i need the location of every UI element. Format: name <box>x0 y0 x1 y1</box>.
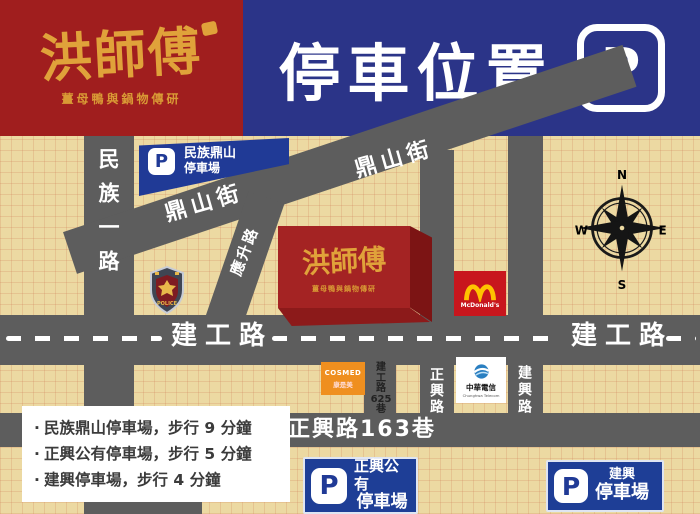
compass-w: W <box>575 223 588 237</box>
parking-p-icon: P <box>148 148 175 175</box>
mcdonalds-icon: McDonald's <box>454 271 506 316</box>
building-bottom-face <box>278 308 430 326</box>
brand-logo-subtitle: 薑母鴨與鍋物傳研 <box>61 90 181 107</box>
map: 民族一路 鼎山街 鼎山街 應升路 建工路 建工路 建 工 路 625 巷 正興路… <box>0 136 700 514</box>
building-front-face: 洪師傅 薑母鴨與鍋物傳研 <box>278 226 410 308</box>
restaurant-subtitle: 薑母鴨與鍋物傳研 <box>312 284 376 294</box>
cosmed-label-en: COSMED <box>325 369 362 377</box>
road-jianxing-upper <box>508 136 543 315</box>
compass-n: N <box>617 168 627 182</box>
road-label-minzu: 民族一路 <box>97 148 118 284</box>
legend-item: ‧建興停車場，步行 4 分鐘 <box>30 467 282 493</box>
mcdonalds-label: McDonald's <box>461 302 500 309</box>
parking-p-icon: P <box>311 468 347 504</box>
road-label-jiangong-left: 建工路 <box>171 323 273 349</box>
bullet-icon: ‧ <box>30 441 44 467</box>
police-station-icon: POLICE <box>146 266 188 314</box>
brand-logo-title: 洪師傅 <box>39 25 204 85</box>
road-centerline-dash <box>272 336 562 341</box>
legend-item: ‧正興公有停車場，步行 5 分鐘 <box>30 441 282 467</box>
road-label-lane163: 正興路163巷 <box>288 419 436 441</box>
chunghwa-telecom-building: 中華電信 Chunghwa Telecom <box>456 357 506 403</box>
brand-seal-icon <box>201 21 218 37</box>
chunghwa-telecom-icon <box>473 363 490 380</box>
cosmed-label-zh: 康是美 <box>333 379 353 389</box>
svg-text:POLICE: POLICE <box>157 301 178 307</box>
road-centerline-dash <box>6 336 162 341</box>
walking-time-legend: ‧民族鼎山停車場，步行 9 分鐘 ‧正興公有停車場，步行 5 分鐘 ‧建興停車場… <box>22 406 290 502</box>
compass-rose: N E S W <box>574 160 670 296</box>
parking-map-poster: 洪師傅 薑母鴨與鍋物傳研 停車位置 P 民族一路 鼎山街 鼎山街 應升路 建工路 <box>0 0 700 514</box>
building-side-face <box>410 226 432 322</box>
legend-item: ‧民族鼎山停車場，步行 9 分鐘 <box>30 415 282 441</box>
bullet-icon: ‧ <box>30 467 44 493</box>
parking-p-icon: P <box>554 469 588 503</box>
cht-label-zh: 中華電信 <box>466 382 496 393</box>
zhengxing-parking-sign: P 正興公有 停車場 <box>303 457 418 514</box>
road-label-lane625: 建 工 路 625 巷 <box>367 363 395 416</box>
compass-e: E <box>659 223 667 237</box>
cht-label-en: Chunghwa Telecom <box>463 393 500 398</box>
road-label-zhengxing: 正興路 <box>429 367 443 415</box>
bullet-icon: ‧ <box>30 415 44 441</box>
compass-s: S <box>618 278 627 292</box>
restaurant-building: 洪師傅 薑母鴨與鍋物傳研 <box>278 222 432 328</box>
minzu-parking-name: 民族鼎山 停車場 <box>184 146 236 176</box>
cosmed-store: COSMED 康是美 <box>321 362 365 395</box>
jianxing-parking-sign: P 建興 停車場 <box>546 460 664 512</box>
road-label-jianxing: 建興路 <box>517 365 531 416</box>
restaurant-title: 洪師傅 <box>301 238 387 282</box>
brand-logo-panel: 洪師傅 薑母鴨與鍋物傳研 <box>0 0 243 136</box>
road-label-jiangong-right: 建工路 <box>571 323 673 349</box>
